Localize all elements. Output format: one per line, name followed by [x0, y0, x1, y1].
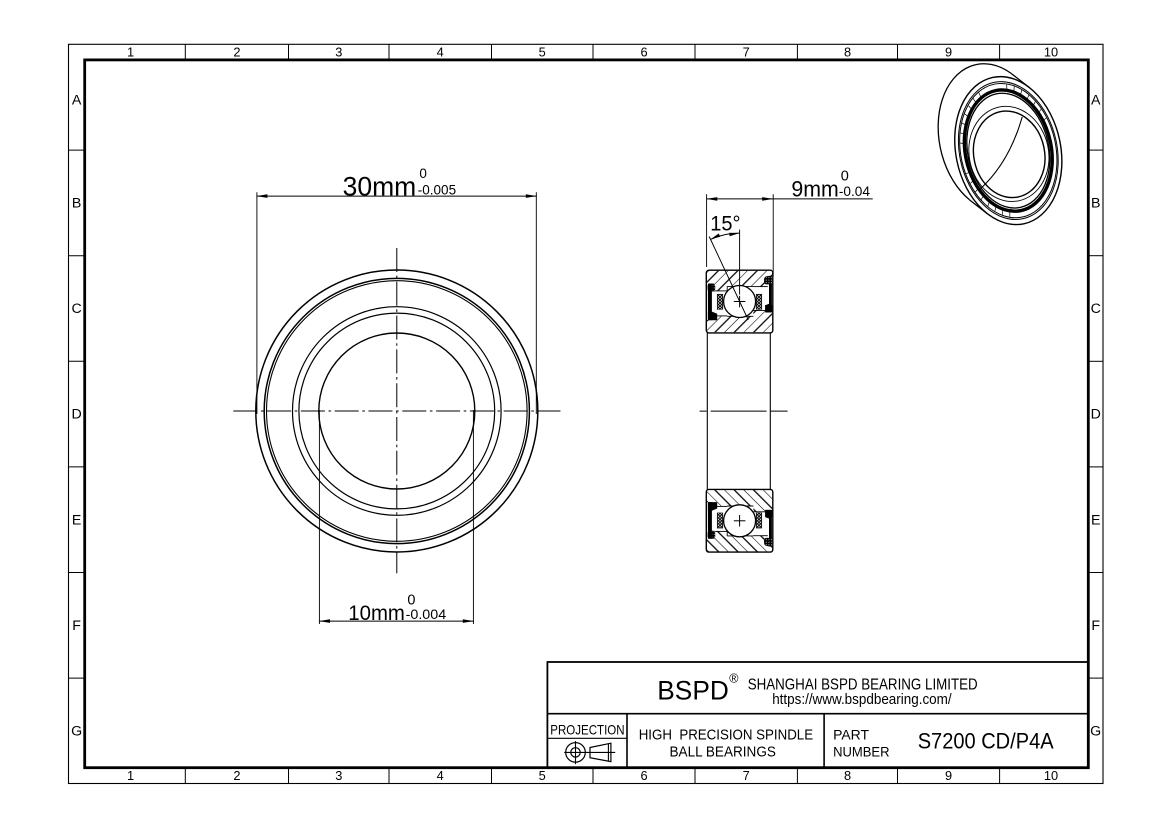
svg-text:10: 10 — [1044, 44, 1058, 59]
svg-text:8: 8 — [844, 44, 851, 59]
svg-text:8: 8 — [844, 768, 851, 783]
svg-text:4: 4 — [437, 768, 444, 783]
svg-text:3: 3 — [335, 44, 342, 59]
svg-text:0: 0 — [419, 166, 427, 181]
svg-text:1: 1 — [127, 44, 134, 59]
svg-text:D: D — [1091, 407, 1101, 423]
svg-text:B: B — [1091, 196, 1100, 212]
svg-text:D: D — [71, 407, 81, 423]
svg-text:10: 10 — [1044, 768, 1058, 783]
svg-text:10mm: 10mm — [348, 601, 405, 625]
svg-text:E: E — [72, 512, 81, 528]
svg-text:G: G — [71, 723, 82, 739]
svg-text:6: 6 — [640, 44, 647, 59]
svg-text:2: 2 — [233, 44, 240, 59]
svg-text:A: A — [72, 93, 82, 109]
svg-text:NUMBER: NUMBER — [833, 744, 889, 760]
svg-text:https://www.bspdbearing.com/: https://www.bspdbearing.com/ — [772, 692, 951, 708]
svg-text:B: B — [72, 196, 81, 212]
svg-text:PART: PART — [833, 728, 869, 744]
svg-text:-0.005: -0.005 — [418, 183, 456, 198]
svg-text:5: 5 — [539, 768, 546, 783]
svg-text:9: 9 — [945, 768, 952, 783]
svg-text:F: F — [72, 618, 81, 634]
svg-text:9: 9 — [945, 44, 952, 59]
svg-text:S7200 CD/P4A: S7200 CD/P4A — [918, 728, 1054, 753]
svg-text:1: 1 — [127, 768, 134, 783]
svg-text:3: 3 — [335, 768, 342, 783]
svg-text:PROJECTION: PROJECTION — [550, 722, 624, 738]
svg-text:HIGH PRECISION SPINDLE: HIGH PRECISION SPINDLE — [639, 727, 813, 744]
svg-text:15°: 15° — [710, 212, 740, 235]
svg-text:G: G — [1090, 723, 1101, 739]
svg-text:2: 2 — [233, 768, 240, 783]
svg-text:BSPD: BSPD — [657, 675, 729, 705]
svg-text:E: E — [1091, 512, 1100, 528]
svg-text:C: C — [1091, 301, 1101, 317]
svg-text:BALL BEARINGS: BALL BEARINGS — [670, 743, 776, 760]
svg-text:F: F — [1091, 618, 1100, 634]
svg-text:6: 6 — [640, 768, 647, 783]
svg-text:-0.04: -0.04 — [839, 183, 870, 199]
svg-text:9mm: 9mm — [791, 176, 838, 201]
svg-text:4: 4 — [437, 44, 444, 59]
svg-text:C: C — [71, 301, 81, 317]
svg-text:A: A — [1091, 93, 1101, 109]
svg-text:®: ® — [729, 671, 739, 685]
svg-text:7: 7 — [743, 768, 750, 783]
svg-text:30mm: 30mm — [343, 171, 417, 201]
svg-text:7: 7 — [743, 44, 750, 59]
svg-text:-0.004: -0.004 — [406, 606, 447, 622]
svg-text:5: 5 — [539, 44, 546, 59]
